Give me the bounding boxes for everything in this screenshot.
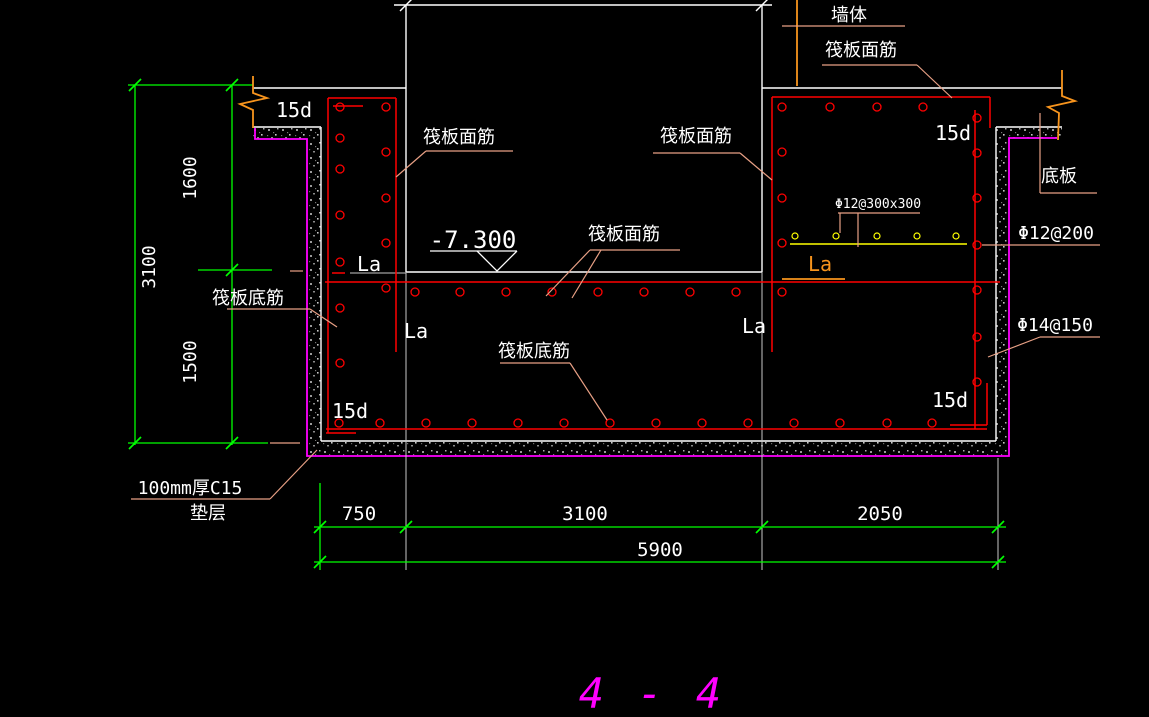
right-wall-bar-lower-label: Φ14@150 bbox=[1017, 315, 1093, 336]
bottom-slab-label: 底板 bbox=[1041, 166, 1077, 187]
extension-lines bbox=[350, 272, 998, 570]
anchorage-label-bl: 15d bbox=[332, 399, 368, 423]
lap-label-1: La bbox=[357, 252, 381, 276]
lap-label-2: La bbox=[808, 252, 832, 276]
dim-bottom-seg2: 3100 bbox=[562, 503, 608, 525]
structure-outline bbox=[253, 0, 1062, 441]
rebar-section-dots bbox=[335, 103, 981, 427]
raft-top-rebar-label-left: 筏板面筋 bbox=[423, 127, 495, 148]
pit-mesh-label: Φ12@300x300 bbox=[835, 197, 921, 212]
raft-bottom-rebar-label-center: 筏板底筋 bbox=[498, 341, 570, 362]
lap-label-3: La bbox=[404, 319, 428, 343]
dimension-ticks bbox=[129, 79, 1004, 568]
cushion-label-line1: 100mm厚C15 bbox=[138, 478, 243, 499]
elevation-label: -7.300 bbox=[430, 226, 517, 254]
dim-bottom-total: 5900 bbox=[637, 539, 683, 561]
anchorage-label-tr: 15d bbox=[935, 121, 971, 145]
raft-top-rebar-label-right: 筏板面筋 bbox=[660, 126, 732, 147]
elevation-marker bbox=[430, 251, 517, 271]
dim-left-lower: 1500 bbox=[180, 340, 201, 383]
dim-bottom-seg1: 750 bbox=[342, 503, 376, 525]
section-title: 4 - 4 bbox=[579, 669, 725, 717]
cushion-label-line2: 垫层 bbox=[190, 503, 226, 524]
lap-label-4: La bbox=[742, 314, 766, 338]
raft-top-rebar-label-tr: 筏板面筋 bbox=[825, 40, 897, 61]
right-wall-bar-upper-label: Φ12@200 bbox=[1018, 223, 1094, 244]
dim-left-upper: 1600 bbox=[180, 156, 201, 199]
section-drawing: 墙体 筏板面筋 15d 筏板面筋 筏板面筋 15d 底板 Φ12@300x300… bbox=[0, 0, 1149, 717]
pit-mesh-rebar bbox=[790, 233, 967, 244]
anchorage-label-tl: 15d bbox=[276, 98, 312, 122]
raft-bottom-rebar-label-left: 筏板底筋 bbox=[212, 288, 284, 309]
anchorage-label-br: 15d bbox=[932, 388, 968, 412]
dim-left-total: 3100 bbox=[139, 245, 160, 288]
raft-top-rebar-label-center: 筏板面筋 bbox=[588, 224, 660, 245]
dimension-lines bbox=[128, 79, 1006, 570]
wall-label: 墙体 bbox=[831, 5, 867, 26]
dim-bottom-seg3: 2050 bbox=[857, 503, 903, 525]
cad-canvas: 墙体 筏板面筋 15d 筏板面筋 筏板面筋 15d 底板 Φ12@300x300… bbox=[0, 0, 1149, 717]
